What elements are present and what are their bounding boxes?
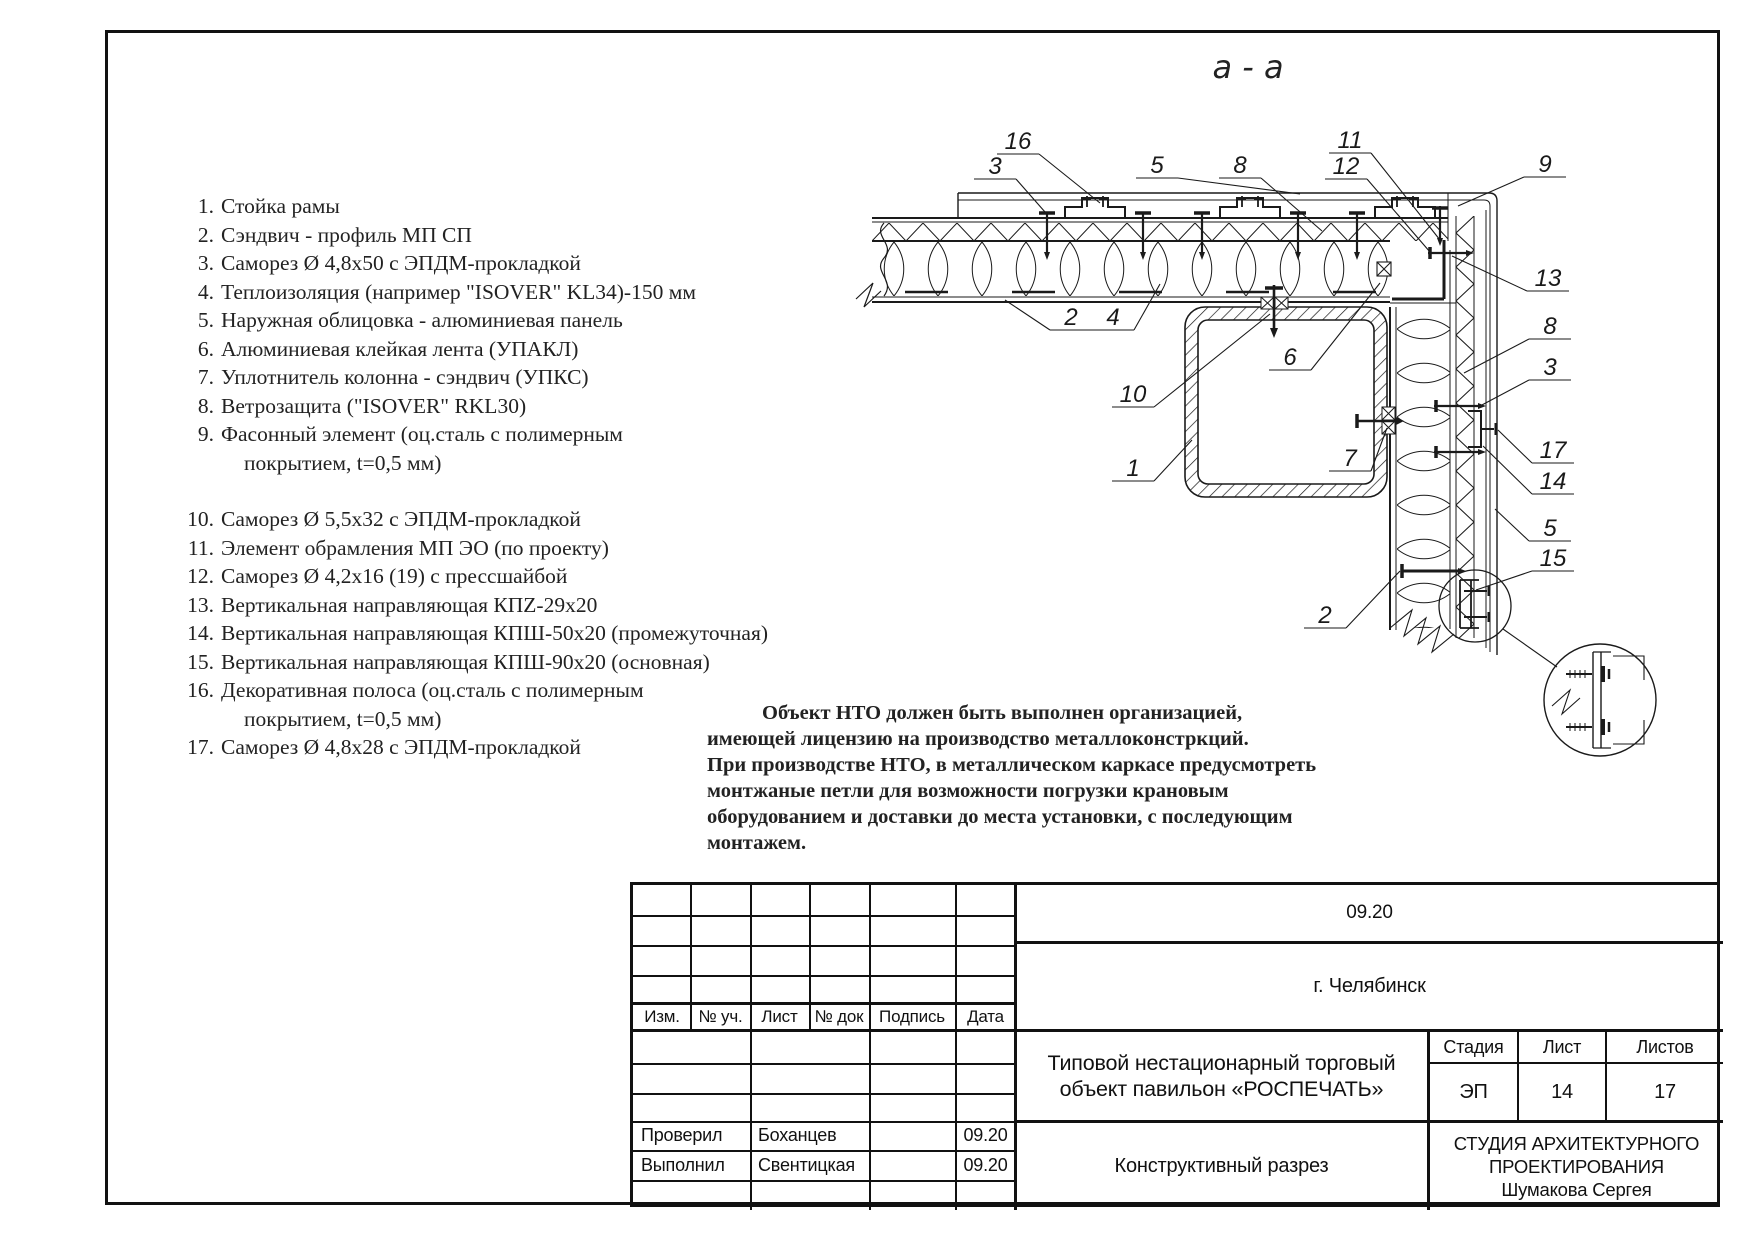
svg-text:13: 13 [1535, 265, 1562, 292]
col-podpis: Подпись [869, 1003, 955, 1030]
sign-date-2: 09.20 [955, 1150, 1016, 1180]
legend-item: 16.Декоративная полоса (оц.сталь с полим… [168, 676, 768, 705]
detail-circle-large [1544, 644, 1656, 756]
legend-item: 8.Ветрозащита ("ISOVER" RKL30) [168, 392, 768, 421]
svg-text:12: 12 [1333, 153, 1360, 180]
svg-text:10: 10 [1120, 381, 1147, 408]
legend-list: 1.Стойка рамы2.Сэндвич - профиль МП СП3.… [168, 192, 768, 762]
sheet-label: Лист [1519, 1032, 1605, 1062]
svg-text:1: 1 [1126, 455, 1139, 482]
svg-text:5: 5 [1543, 515, 1557, 542]
svg-text:9: 9 [1538, 151, 1551, 178]
project-title: Типовой нестационарный торговый объект п… [1016, 1032, 1427, 1120]
org-line1: СТУДИЯ АРХИТЕКТУРНОГО [1454, 1132, 1700, 1155]
callout-15: 15 [1476, 545, 1574, 590]
legend-item: 15.Вертикальная направляющая КПШ-90х20 (… [168, 648, 768, 677]
sign-role-2: Выполнил [633, 1150, 758, 1180]
svg-text:11: 11 [1338, 127, 1363, 154]
legend-item: 7.Уплотнитель колонна - сэндвич (УПКС) [168, 363, 768, 392]
callout-5: 5 [1495, 509, 1571, 542]
legend-item: 17.Саморез Ø 4,8х28 с ЭПДМ-прокладкой [168, 733, 768, 762]
drawing-sheet: 1.Стойка рамы2.Сэндвич - профиль МП СП3.… [0, 0, 1754, 1241]
legend-item: 4.Теплоизоляция (например "ISOVER" KL34)… [168, 278, 768, 307]
stage-value: ЭП [1430, 1064, 1517, 1120]
project-title-line1: Типовой нестационарный торговый [1048, 1050, 1396, 1076]
legend-item: 9.Фасонный элемент (оц.сталь с полимерны… [168, 420, 768, 449]
callout-2: 2 [1005, 300, 1092, 331]
city: г. Челябинск [1016, 943, 1723, 1029]
col-uch: № уч. [691, 1003, 750, 1030]
sign-date-1: 09.20 [955, 1121, 1016, 1150]
legend-item: 11.Элемент обрамления МП ЭО (по проекту) [168, 534, 768, 563]
svg-text:7: 7 [1343, 445, 1358, 472]
sheet-value: 14 [1519, 1064, 1605, 1120]
svg-text:5: 5 [1150, 152, 1164, 179]
svg-text:3: 3 [988, 153, 1002, 180]
legend-item: 2.Сэндвич - профиль МП СП [168, 221, 768, 250]
drawing-name: Конструктивный разрез [1016, 1123, 1427, 1210]
org-line2: ПРОЕКТИРОВАНИЯ [1489, 1155, 1664, 1178]
callout-9: 9 [1458, 151, 1566, 206]
callout-17: 17 [1498, 430, 1574, 464]
doc-date: 09.20 [1016, 885, 1723, 941]
sign-role-1: Проверил [633, 1121, 758, 1150]
svg-text:6: 6 [1283, 344, 1297, 371]
svg-text:16: 16 [1005, 128, 1032, 155]
project-title-line2: объект павильон «РОСПЕЧАТЬ» [1060, 1076, 1384, 1102]
sign-name-2: Свентицкая [750, 1150, 877, 1180]
svg-text:8: 8 [1233, 152, 1247, 179]
legend-item-continued: покрытием, t=0,5 мм) [168, 449, 768, 478]
callout-5: 5 [1136, 152, 1300, 194]
svg-text:3: 3 [1543, 354, 1557, 381]
stage-label: Стадия [1430, 1032, 1517, 1062]
svg-text:4: 4 [1106, 304, 1119, 331]
legend-item: 14.Вертикальная направляющая КПШ-50х20 (… [168, 619, 768, 648]
svg-text:2: 2 [1063, 304, 1077, 331]
col-data: Дата [955, 1003, 1016, 1030]
legend-item: 5.Наружная облицовка - алюминиевая панел… [168, 306, 768, 335]
legend-item: 13.Вертикальная направляющая КПZ-29х20 [168, 591, 768, 620]
legend-item: 12.Саморез Ø 4,2х16 (19) с прессшайбой [168, 562, 768, 591]
col-list: Лист [750, 1003, 809, 1030]
sign-name-1: Боханцев [750, 1121, 877, 1150]
org-line3: Шумакова Сергея [1501, 1178, 1651, 1201]
svg-text:2: 2 [1317, 602, 1331, 629]
svg-text:17: 17 [1540, 437, 1568, 464]
callout-16: 16 [997, 128, 1100, 203]
note-line: монтажем. [707, 830, 1327, 856]
legend-item: 3.Саморез Ø 4,8х50 с ЭПДМ-прокладкой [168, 249, 768, 278]
legend-item-continued: покрытием, t=0,5 мм) [168, 705, 768, 734]
col-dok: № док [809, 1003, 869, 1030]
callout-3: 3 [1480, 354, 1571, 406]
callout-3: 3 [974, 153, 1045, 212]
organization: СТУДИЯ АРХИТЕКТУРНОГО ПРОЕКТИРОВАНИЯ Шум… [1430, 1123, 1723, 1210]
callout-1: 1 [1112, 440, 1192, 482]
svg-text:15: 15 [1540, 545, 1567, 572]
title-block: Изм. № уч. Лист № док Подпись Дата Прове… [630, 882, 1720, 1207]
legend-item: 6.Алюминиевая клейкая лента (УПАКЛ) [168, 335, 768, 364]
svg-text:8: 8 [1543, 313, 1557, 340]
callout-2: 2 [1304, 571, 1400, 629]
column [1185, 307, 1387, 497]
section-drawing: 16358111291383171451524101672 [840, 40, 1720, 830]
svg-text:14: 14 [1540, 468, 1567, 495]
callout-8: 8 [1219, 152, 1322, 231]
legend-item: 1.Стойка рамы [168, 192, 768, 221]
legend-item: 10.Саморез Ø 5,5х32 с ЭПДМ-прокладкой [168, 505, 768, 534]
sheets-label: Листов [1607, 1032, 1723, 1062]
col-izm: Изм. [633, 1003, 691, 1030]
sheets-value: 17 [1607, 1064, 1723, 1120]
